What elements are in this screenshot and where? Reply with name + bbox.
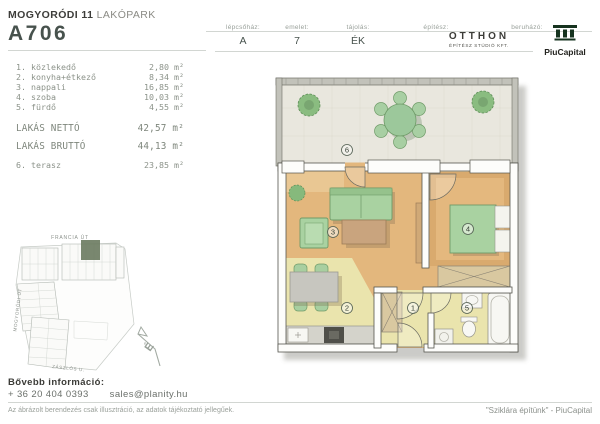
project-title: MOGYORÓDI 11 LAKÓPARK <box>8 9 156 21</box>
disclaimer-text: Az ábrázolt berendezés csak illusztráció… <box>8 407 234 414</box>
armchair-icon <box>300 218 328 248</box>
site-wing-bottom <box>28 317 69 369</box>
footer-rule <box>8 402 592 403</box>
bedroom-closet-icon <box>438 266 510 287</box>
terrace-railing <box>276 78 518 85</box>
room-name: fürdő <box>31 102 56 112</box>
email-address: sales@planity.hu <box>110 389 188 400</box>
net-label: LAKÁS NETTÓ <box>16 124 80 134</box>
pillow-icon <box>495 230 511 252</box>
room-num: 5. <box>16 102 26 112</box>
room-name: konyha+étkező <box>31 72 96 82</box>
room-unit: m² <box>174 72 184 82</box>
net-area: 42,57 <box>138 123 167 134</box>
unit-id: A706 <box>8 22 68 46</box>
datasheet-page: MOGYORÓDI 11 LAKÓPARK A706 lépcsőház: A … <box>0 0 600 424</box>
terrace-num: 6. <box>16 160 26 170</box>
bath-number: 5 <box>465 304 469 313</box>
terrace-name: terasz <box>31 160 61 170</box>
room-list: 1. közlekedő 2,80 m² 2. konyha+étkező 8,… <box>16 62 184 170</box>
terrace-row: 6. terasz 23,85 m² <box>16 160 184 170</box>
gross-label: LAKÁS BRUTTÓ <box>16 142 86 152</box>
architect-name: OTTHON <box>446 31 512 42</box>
terrace-area: 23,85 <box>144 160 169 170</box>
kitchen-counter <box>286 326 378 344</box>
floor-label: emelet: <box>265 24 329 31</box>
street-label-top: FRANCIA ÚT <box>51 234 89 241</box>
bedroom-number: 4 <box>466 225 470 234</box>
phone-number: + 36 20 404 0393 <box>8 389 89 400</box>
room-unit: m² <box>174 62 184 72</box>
project-title-bold: MOGYORÓDI 11 <box>8 9 93 21</box>
room-num: 3. <box>16 82 26 92</box>
room-unit: m² <box>174 102 184 112</box>
unit-id-underline <box>8 50 206 51</box>
developer-name: PiuCapital <box>535 47 595 57</box>
room-row-1: 1. közlekedő 2,80 m² <box>16 62 184 72</box>
north-letter: É <box>142 340 157 353</box>
room-area: 10,03 <box>144 92 169 102</box>
slogan-text: "Sziklára építünk" - PiuCapital <box>486 406 592 415</box>
pillow-icon <box>495 206 511 228</box>
piucapital-column-icon <box>552 25 578 41</box>
room-unit: m² <box>174 82 184 92</box>
plant-icon <box>472 91 494 113</box>
plant-icon <box>289 185 305 201</box>
bathtub-icon <box>488 293 512 346</box>
architect-label-wrap: építész: <box>404 24 468 31</box>
hall-number: 1 <box>411 304 415 313</box>
field-floor: emelet: 7 <box>265 24 329 47</box>
bed-icon <box>450 205 511 256</box>
site-plan-drawing: FRANCIA ÚT MOGYORÓDI ÚT ZÁSZLÓS U. É <box>12 228 180 376</box>
floor-plan: 6 3 4 2 1 5 <box>266 56 534 375</box>
kitchen-number: 2 <box>345 304 349 313</box>
room-area: 4,55 <box>149 102 169 112</box>
room-row-4: 4. szoba 10,03 m² <box>16 92 184 102</box>
terrace-room <box>276 78 518 166</box>
terrace-number: 6 <box>345 146 349 155</box>
coffee-table-icon <box>342 220 390 248</box>
living-number: 3 <box>331 228 335 237</box>
site-highlighted-unit <box>81 240 100 260</box>
north-arrow-icon: É <box>138 327 160 366</box>
room-name: közlekedő <box>31 62 76 72</box>
gross-area: 44,13 <box>138 141 167 152</box>
sofa-icon <box>330 188 395 224</box>
room-row-3: 3. nappali 16,85 m² <box>16 82 184 92</box>
gross-area-row: LAKÁS BRUTTÓ 44,13 m² <box>16 142 184 152</box>
contact-row: + 36 20 404 0393 sales@planity.hu <box>8 389 188 400</box>
room-num: 4. <box>16 92 26 102</box>
field-orientation: tájolás: ÉK <box>326 24 390 47</box>
stove-detail <box>329 331 339 339</box>
dining-table-icon <box>290 272 342 306</box>
room-row-5: 5. fürdő 4,55 m² <box>16 102 184 112</box>
architect-label: építész: <box>404 24 468 31</box>
room-name: szoba <box>31 92 56 102</box>
net-area-row: LAKÁS NETTÓ 42,57 m² <box>16 124 184 134</box>
room-row-2: 2. konyha+étkező 8,34 m² <box>16 72 184 82</box>
room-num: 2. <box>16 72 26 82</box>
room-unit: m² <box>174 92 184 102</box>
orientation-value: ÉK <box>326 35 390 47</box>
architect-logo: OTTHON ÉPÍTÉSZ STÚDIÓ KFT. <box>446 31 512 48</box>
washing-machine-icon <box>435 329 453 345</box>
header-value-rule <box>215 51 533 52</box>
room-area: 8,34 <box>149 72 169 82</box>
room-area: 16,85 <box>144 82 169 92</box>
architect-subtitle: ÉPÍTÉSZ STÚDIÓ KFT. <box>446 43 512 48</box>
developer-logo: PiuCapital <box>535 25 595 57</box>
plant-icon <box>298 94 320 116</box>
floor-value: 7 <box>265 35 329 47</box>
sink-icon <box>288 328 308 342</box>
room-num: 1. <box>16 62 26 72</box>
orientation-label: tájolás: <box>326 24 390 31</box>
project-title-light: LAKÓPARK <box>97 9 156 21</box>
site-plan: FRANCIA ÚT MOGYORÓDI ÚT ZÁSZLÓS U. É <box>12 228 180 381</box>
room-name: nappali <box>31 82 66 92</box>
floor-plan-drawing: 6 3 4 2 1 5 <box>266 56 534 370</box>
room-area: 2,80 <box>149 62 169 72</box>
info-label: Bővebb információ: <box>8 377 104 388</box>
